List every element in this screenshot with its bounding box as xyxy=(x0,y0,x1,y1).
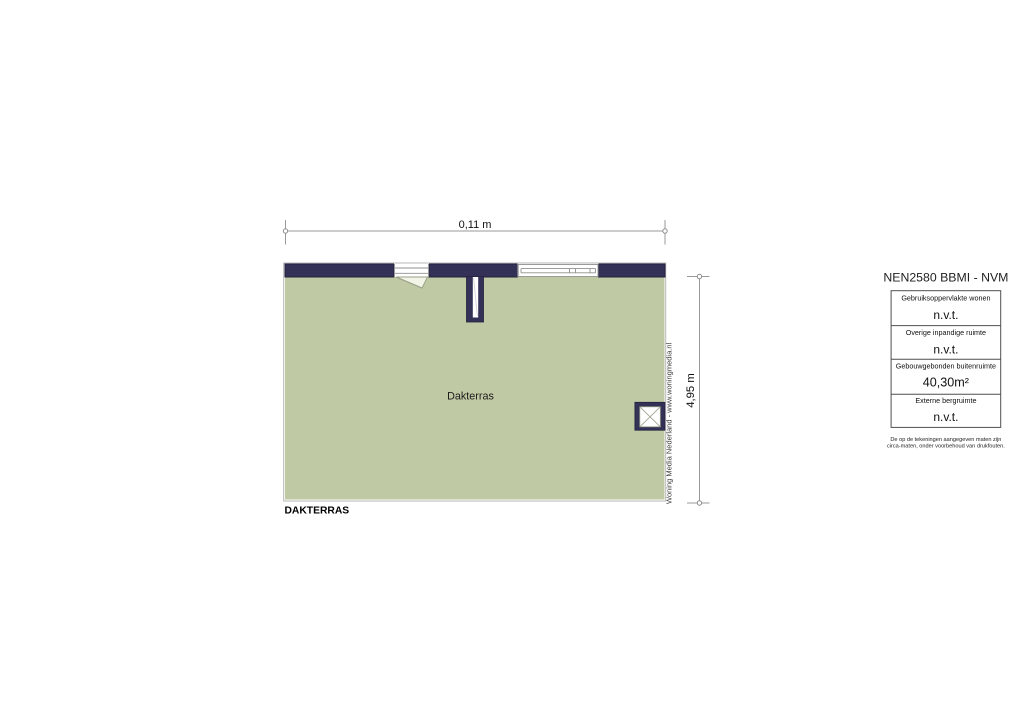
svg-text:0,11 m: 0,11 m xyxy=(459,219,492,231)
svg-text:40,30m²: 40,30m² xyxy=(923,376,969,390)
svg-text:NEN2580 BBMI - NVM: NEN2580 BBMI - NVM xyxy=(883,271,1008,285)
svg-text:4,95 m: 4,95 m xyxy=(685,373,697,408)
svg-text:circa-maten, onder voorbehoud: circa-maten, onder voorbehoud van drukfo… xyxy=(887,444,1005,450)
svg-text:De op de tekeningen aangegeven: De op de tekeningen aangegeven maten zij… xyxy=(890,437,1001,443)
svg-text:Gebouwgebonden buitenruimte: Gebouwgebonden buitenruimte xyxy=(896,361,996,370)
svg-text:Woning Media Nederland - www: Woning Media Nederland - www.woningmedia… xyxy=(665,342,674,504)
svg-text:Gebruiksoppervlakte wonen: Gebruiksoppervlakte wonen xyxy=(901,294,990,303)
svg-text:n.v.t.: n.v.t. xyxy=(933,308,958,322)
svg-text:n.v.t.: n.v.t. xyxy=(933,410,958,424)
svg-text:Dakterras: Dakterras xyxy=(447,391,494,403)
svg-text:DAKTERRAS: DAKTERRAS xyxy=(285,506,350,517)
svg-text:Externe bergruimte: Externe bergruimte xyxy=(915,396,976,405)
svg-text:n.v.t.: n.v.t. xyxy=(933,343,958,357)
svg-text:Overige inpandige ruimte: Overige inpandige ruimte xyxy=(906,328,986,337)
